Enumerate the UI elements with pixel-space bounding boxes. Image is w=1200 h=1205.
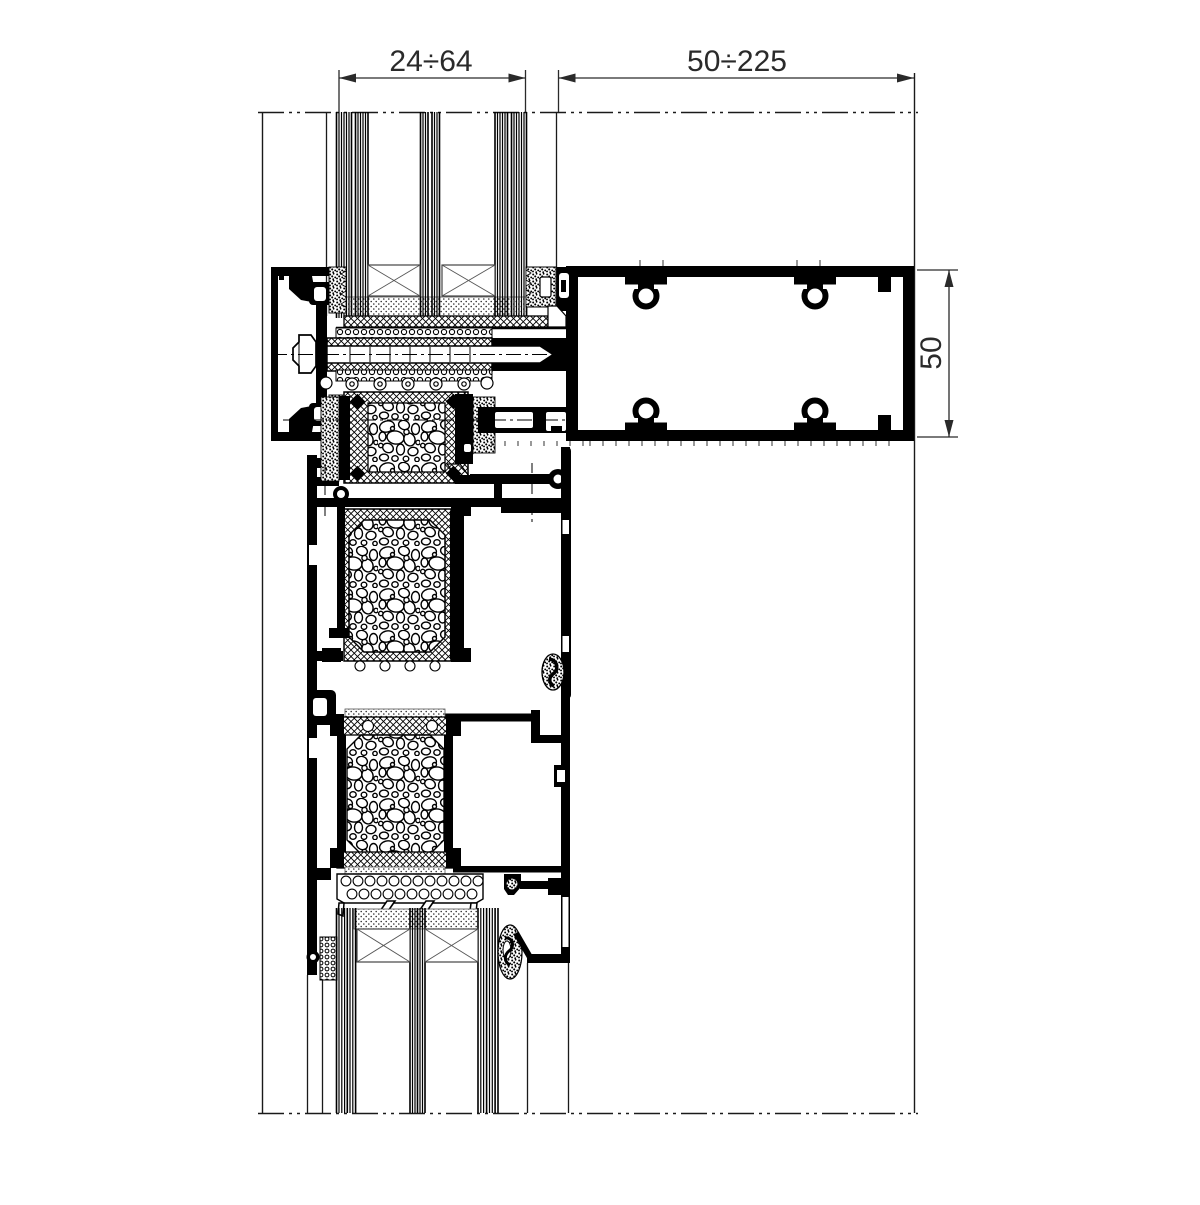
svg-text:24÷64: 24÷64 <box>389 45 472 78</box>
svg-text:50: 50 <box>915 336 948 369</box>
svg-text:50÷225: 50÷225 <box>687 45 787 78</box>
